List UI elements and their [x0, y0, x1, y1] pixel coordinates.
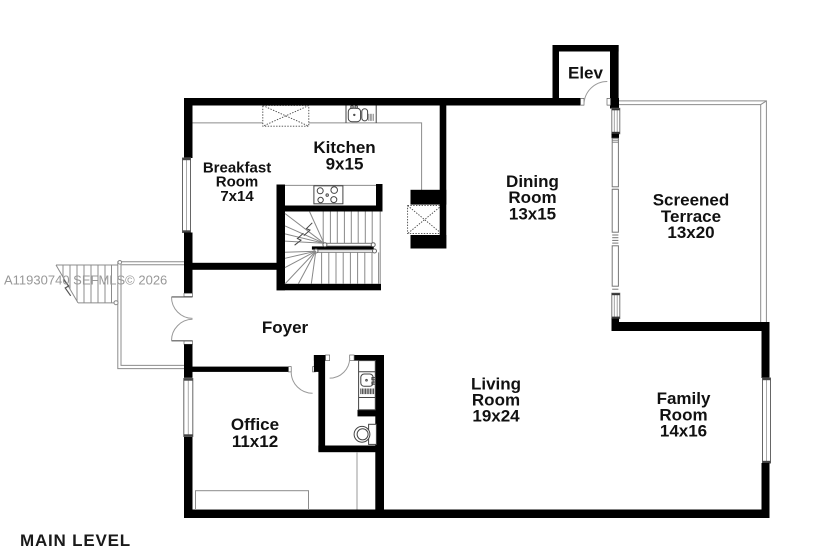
- svg-text:13x20: 13x20: [667, 223, 714, 242]
- svg-text:19x24: 19x24: [472, 407, 520, 426]
- svg-text:Elev: Elev: [568, 64, 604, 83]
- svg-text:14x16: 14x16: [660, 422, 707, 441]
- svg-text:11x12: 11x12: [232, 432, 278, 451]
- svg-text:7x14: 7x14: [220, 188, 254, 205]
- svg-text:MAIN LEVEL: MAIN LEVEL: [20, 531, 131, 550]
- svg-text:A11930740 SEFMLS© 2026: A11930740 SEFMLS© 2026: [4, 273, 167, 288]
- svg-text:Foyer: Foyer: [262, 318, 309, 337]
- svg-text:13x15: 13x15: [509, 204, 556, 223]
- svg-text:9x15: 9x15: [326, 154, 364, 173]
